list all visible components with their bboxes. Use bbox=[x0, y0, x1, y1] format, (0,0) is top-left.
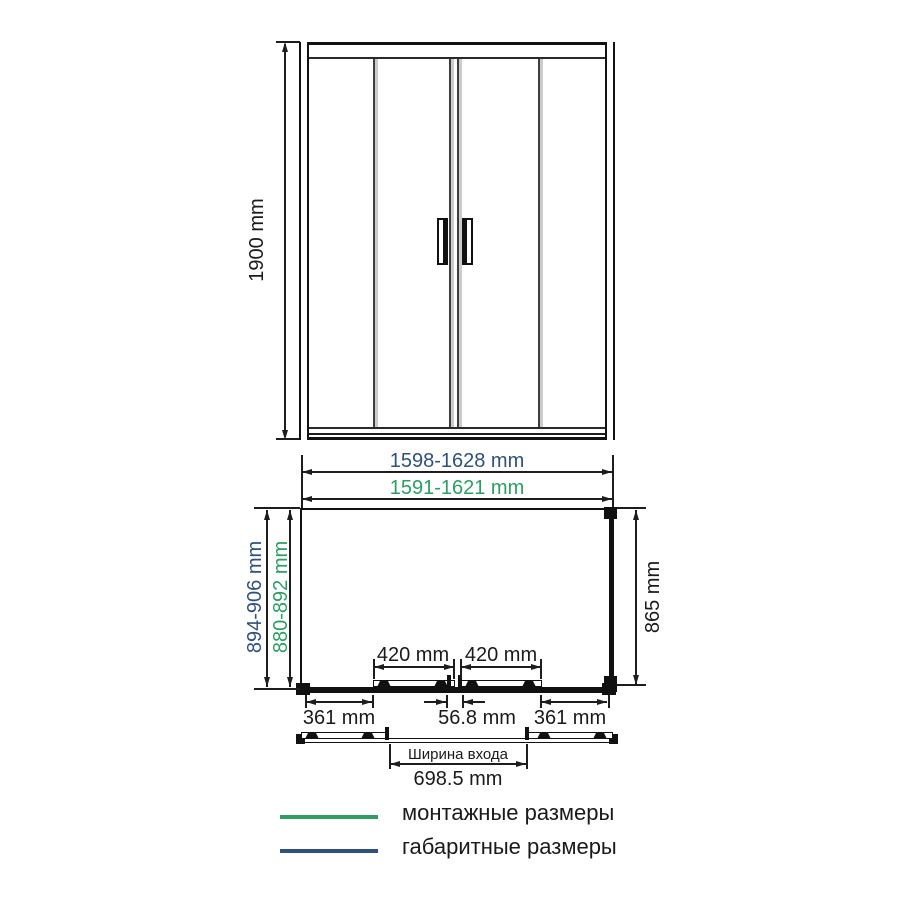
door-width-dimension-line bbox=[374, 666, 454, 668]
arrowhead bbox=[463, 699, 473, 705]
roller-marker bbox=[434, 681, 448, 687]
panel-divider bbox=[538, 59, 543, 427]
top-rail bbox=[309, 42, 605, 59]
arrowhead bbox=[287, 677, 293, 687]
arrowhead bbox=[306, 699, 316, 705]
track-end-block bbox=[602, 683, 616, 695]
overall-width-label: 1598-1628 mm bbox=[357, 450, 557, 472]
extension-line bbox=[254, 507, 300, 509]
door-width-dimension-line bbox=[461, 666, 541, 668]
handle-marker bbox=[525, 727, 529, 740]
wall-profile-left bbox=[299, 42, 309, 440]
door-handle-left bbox=[437, 218, 448, 265]
arrowhead bbox=[287, 510, 293, 520]
side-section-label-left: 361 mm bbox=[289, 707, 389, 729]
height-dimension-label: 1900 mm bbox=[246, 170, 268, 310]
arrowhead bbox=[362, 699, 372, 705]
corner-profile bbox=[604, 507, 617, 519]
door-width-label-left: 420 mm bbox=[363, 644, 463, 666]
arrowhead bbox=[302, 496, 312, 502]
handle-marker bbox=[385, 727, 389, 740]
mounting-width-label: 1591-1621 mm bbox=[357, 477, 557, 499]
extension-line bbox=[617, 507, 646, 509]
overall-depth-dimension-line bbox=[266, 510, 268, 687]
extension-line bbox=[617, 684, 646, 686]
extension-line bbox=[526, 744, 528, 769]
roller-marker bbox=[377, 681, 391, 687]
arrowhead bbox=[264, 510, 270, 520]
panel-divider bbox=[449, 59, 454, 427]
handle-marker bbox=[447, 675, 451, 687]
overall-depth-label: 894-906 mm bbox=[244, 522, 266, 672]
roller-marker bbox=[522, 681, 536, 687]
extension-line bbox=[254, 688, 300, 690]
panel-divider bbox=[373, 59, 378, 427]
shower-dimension-drawing: 1900 mm 1598-1628 mm 1591-1621 mm bbox=[0, 0, 900, 900]
door-handle-right bbox=[462, 218, 473, 265]
arrowhead bbox=[541, 699, 551, 705]
door-track bbox=[300, 687, 614, 693]
extension-line bbox=[612, 455, 614, 508]
arrowhead bbox=[602, 469, 612, 475]
legend-overall-label: габаритные размеры bbox=[402, 835, 722, 859]
arrowhead bbox=[597, 699, 607, 705]
bottom-rail-inner-line bbox=[309, 433, 605, 435]
extension-line bbox=[276, 438, 300, 440]
entrance-width-label: 698.5 mm bbox=[388, 768, 528, 790]
arrowhead bbox=[633, 675, 639, 685]
roller-marker bbox=[361, 733, 375, 739]
legend-mounting-line bbox=[280, 815, 378, 819]
arrowhead bbox=[602, 496, 612, 502]
legend-overall-line bbox=[280, 849, 378, 853]
height-dimension-line bbox=[284, 44, 286, 436]
side-glass-panel bbox=[609, 508, 614, 690]
arrowhead bbox=[436, 699, 446, 705]
entrance-width-dimension-line bbox=[390, 763, 526, 765]
side-depth-dimension-line bbox=[635, 510, 637, 685]
arrowhead bbox=[282, 42, 288, 52]
roller-marker bbox=[465, 681, 479, 687]
roller-marker bbox=[593, 733, 607, 739]
side-section-label-right: 361 mm bbox=[520, 707, 620, 729]
arrowhead bbox=[390, 761, 400, 767]
roller-marker bbox=[305, 733, 319, 739]
wall-profile-right bbox=[605, 42, 615, 440]
mounting-depth-label: 880-892 mm bbox=[270, 522, 292, 672]
side-depth-label: 865 mm bbox=[642, 537, 664, 657]
arrowhead bbox=[633, 510, 639, 520]
center-overlap-label: 56.8 mm bbox=[427, 707, 527, 729]
entrance-caption: Ширина входа bbox=[391, 746, 525, 763]
arrowhead bbox=[264, 677, 270, 687]
arrowhead bbox=[302, 469, 312, 475]
legend-mounting-label: монтажные размеры bbox=[402, 801, 722, 825]
door-width-label-right: 420 mm bbox=[451, 644, 551, 666]
arrowhead bbox=[516, 761, 526, 767]
roller-marker bbox=[537, 733, 551, 739]
extension-line bbox=[276, 41, 300, 43]
